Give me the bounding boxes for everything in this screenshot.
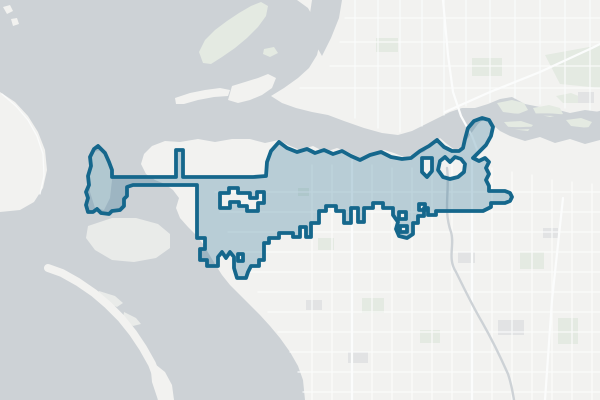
built-6 [578, 92, 594, 103]
map-svg [0, 0, 600, 400]
built-5 [543, 228, 558, 238]
park-2 [362, 298, 384, 313]
built-3 [498, 320, 524, 335]
built-1 [306, 300, 322, 310]
park-5 [558, 318, 578, 344]
park-6 [472, 58, 502, 76]
park-7 [376, 38, 398, 52]
map-canvas[interactable] [0, 0, 600, 400]
